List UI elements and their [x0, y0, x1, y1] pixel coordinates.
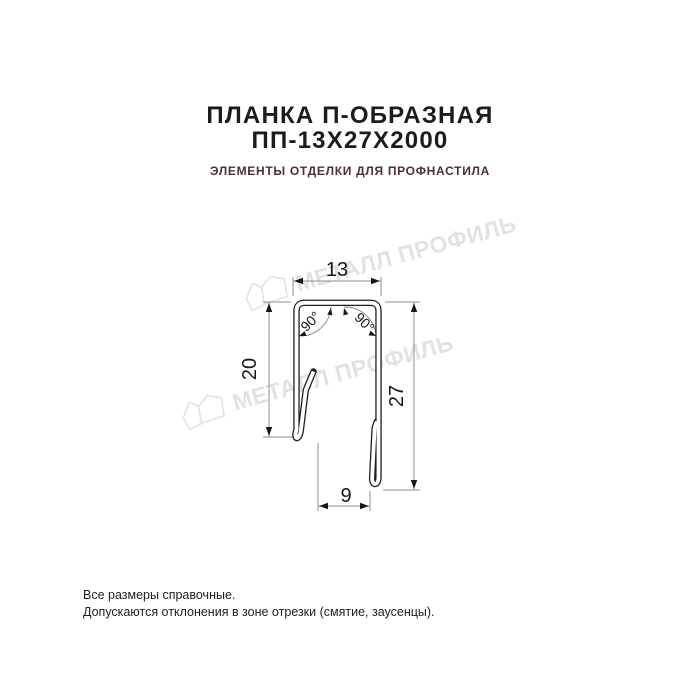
footer-note-1: Все размеры справочные. — [83, 587, 435, 604]
title-block: ПЛАНКА П-ОБРАЗНАЯ ПП-13Х27Х2000 ЭЛЕМЕНТЫ… — [0, 103, 700, 178]
footer-note-2: Допускаются отклонения в зоне отрезки (с… — [83, 604, 435, 621]
footer-notes: Все размеры справочные. Допускаются откл… — [83, 587, 435, 621]
dim-top-width: 13 — [326, 259, 348, 281]
dim-right-height: 27 — [386, 385, 408, 407]
angle-label-right: 90° — [352, 309, 378, 335]
product-card: МЕТАЛЛ ПРОФИЛЬ МЕТАЛЛ ПРОФИЛЬ — [0, 0, 700, 700]
dim-bottom-width: 9 — [340, 485, 351, 507]
dimension-labels: 13 20 27 9 90° 90° — [239, 259, 408, 507]
product-title-line2: ПП-13Х27Х2000 — [0, 128, 700, 153]
angle-label-left: 90° — [297, 308, 323, 334]
product-title-line1: ПЛАНКА П-ОБРАЗНАЯ — [0, 103, 700, 128]
dim-left-height: 20 — [239, 358, 261, 380]
product-subtitle: ЭЛЕМЕНТЫ ОТДЕЛКИ ДЛЯ ПРОФНАСТИЛА — [0, 164, 700, 178]
